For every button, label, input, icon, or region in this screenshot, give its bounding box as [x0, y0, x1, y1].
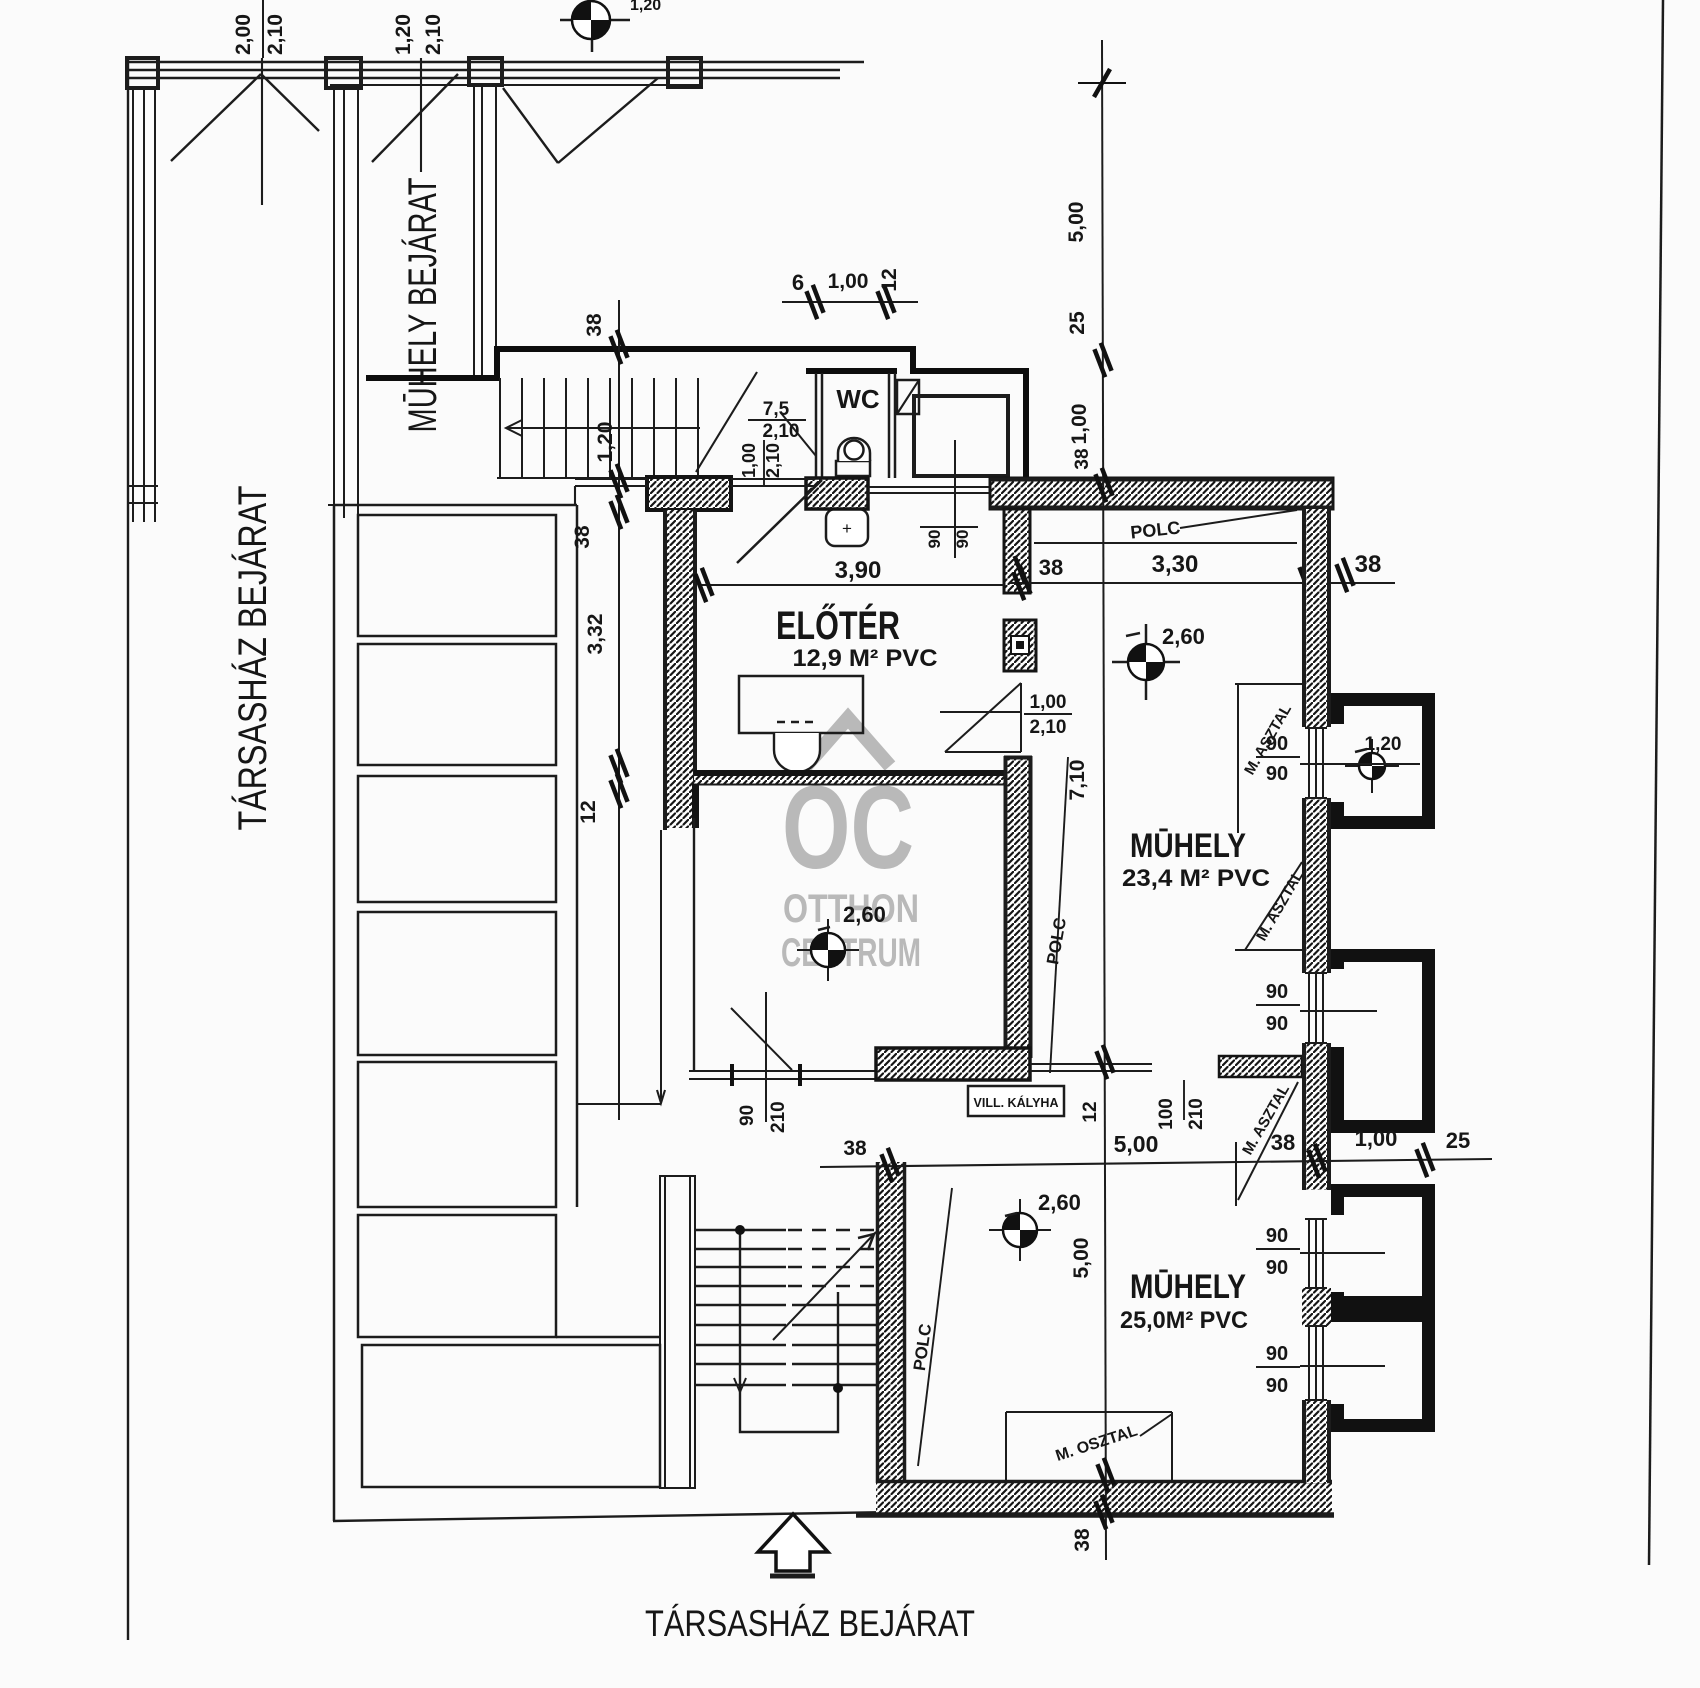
svg-text:90: 90	[1266, 1013, 1288, 1035]
svg-text:12,9 M² PVC: 12,9 M² PVC	[793, 645, 938, 672]
svg-text:5,00: 5,00	[1114, 1131, 1159, 1157]
svg-text:2,60: 2,60	[1038, 1190, 1081, 1215]
svg-text:90: 90	[1266, 1257, 1288, 1279]
svg-text:210: 210	[1186, 1098, 1207, 1130]
svg-text:90: 90	[1266, 733, 1288, 755]
svg-text:90: 90	[1266, 981, 1288, 1003]
svg-text:1,00: 1,00	[1355, 1126, 1398, 1151]
svg-text:90: 90	[1266, 1343, 1288, 1365]
svg-text:MŪHELY: MŪHELY	[1130, 827, 1246, 865]
svg-text:7,10: 7,10	[1066, 760, 1089, 801]
svg-text:6: 6	[792, 270, 804, 295]
svg-text:90: 90	[1266, 1375, 1288, 1397]
svg-text:1,00: 1,00	[739, 443, 759, 478]
svg-text:38: 38	[571, 525, 594, 549]
svg-text:23,4 M² PVC: 23,4 M² PVC	[1122, 865, 1270, 892]
svg-text:12: 12	[577, 800, 600, 823]
svg-text:TÁRSASHÁZ BEJÁRAT: TÁRSASHÁZ BEJÁRAT	[645, 1603, 975, 1644]
svg-text:25: 25	[1066, 311, 1089, 335]
svg-text:1,00: 1,00	[828, 270, 869, 293]
svg-text:12: 12	[1080, 1101, 1101, 1122]
svg-text:38: 38	[583, 313, 606, 337]
svg-text:38: 38	[1039, 555, 1063, 580]
svg-text:100: 100	[1156, 1098, 1177, 1130]
svg-text:5,00: 5,00	[1070, 1238, 1093, 1279]
svg-text:90: 90	[1266, 1225, 1288, 1247]
svg-text:25,0M² PVC: 25,0M² PVC	[1120, 1307, 1248, 1334]
svg-text:5,00: 5,00	[1065, 202, 1088, 243]
svg-text:3,32: 3,32	[584, 614, 607, 655]
svg-text:+: +	[842, 519, 852, 538]
svg-text:12: 12	[878, 268, 901, 291]
svg-text:90: 90	[1266, 763, 1288, 785]
svg-text:CENTRUM: CENTRUM	[781, 931, 921, 975]
svg-text:7,5: 7,5	[763, 399, 790, 420]
svg-text:2,10: 2,10	[763, 443, 783, 478]
svg-text:1,20: 1,20	[630, 0, 661, 14]
svg-text:3,90: 3,90	[835, 557, 882, 584]
svg-text:1,20: 1,20	[1365, 734, 1402, 755]
svg-text:1,00: 1,00	[1068, 404, 1091, 445]
svg-text:MŪHELY BEJÁRAT: MŪHELY BEJÁRAT	[400, 178, 445, 433]
svg-text:38: 38	[1355, 551, 1382, 578]
svg-text:90: 90	[925, 530, 944, 549]
svg-text:2,10: 2,10	[264, 14, 287, 55]
svg-text:90: 90	[737, 1105, 758, 1126]
svg-text:25: 25	[1446, 1128, 1470, 1153]
svg-text:3,30: 3,30	[1152, 551, 1199, 578]
svg-text:38: 38	[1071, 1528, 1094, 1552]
svg-text:2,10: 2,10	[1030, 717, 1067, 738]
svg-text:1,20: 1,20	[392, 14, 415, 55]
svg-text:2,10: 2,10	[763, 421, 800, 442]
svg-text:90: 90	[953, 530, 972, 549]
svg-text:2,60: 2,60	[843, 902, 886, 927]
svg-text:VILL. KÁLYHA: VILL. KÁLYHA	[974, 1095, 1059, 1110]
svg-text:MŪHELY: MŪHELY	[1130, 1268, 1246, 1306]
svg-text:2,60: 2,60	[1162, 624, 1205, 649]
svg-text:210: 210	[768, 1101, 789, 1133]
svg-text:1,20: 1,20	[594, 422, 617, 463]
svg-text:38: 38	[843, 1137, 867, 1160]
svg-text:2,10: 2,10	[422, 14, 445, 55]
svg-text:38: 38	[1072, 448, 1093, 469]
svg-text:1,00: 1,00	[1030, 692, 1067, 713]
svg-text:2,00: 2,00	[232, 14, 255, 55]
svg-text:WC: WC	[836, 384, 880, 414]
svg-text:38: 38	[1271, 1130, 1295, 1155]
svg-text:ELŐTÉR: ELŐTÉR	[776, 602, 900, 648]
svg-text:TÁRSASHÁZ BEJÁRAT: TÁRSASHÁZ BEJÁRAT	[230, 486, 275, 831]
